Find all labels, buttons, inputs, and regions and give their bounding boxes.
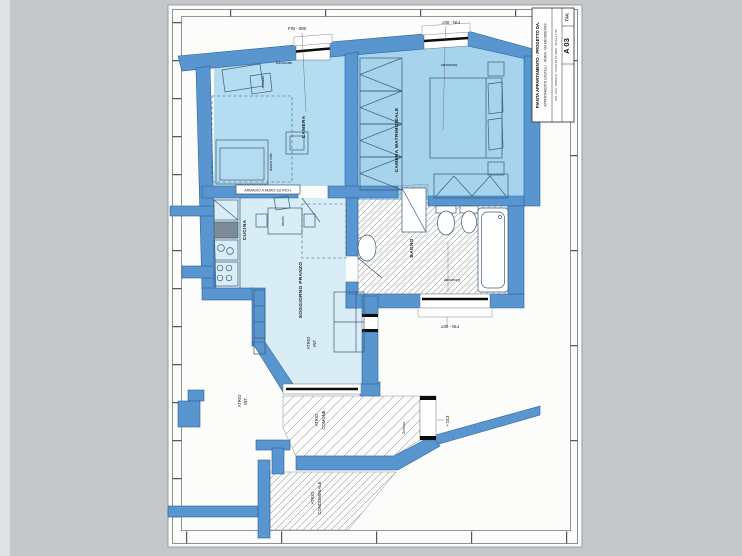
label-camera: CAMERA <box>301 115 307 138</box>
title-block-tav-number: A 03 <box>562 38 571 54</box>
bathtub <box>478 208 508 292</box>
label-tavolo: tavolo <box>281 216 285 225</box>
wall-pillar <box>188 390 204 401</box>
wall-pillar <box>178 401 200 427</box>
label-cucina: CUCINA <box>242 220 248 241</box>
washbasin <box>358 235 376 261</box>
label-atrio-int: ATRIO <box>306 336 311 349</box>
label-bagno: BAGNO <box>409 238 415 257</box>
title-block-line3: DIS. UA4 - MINUTE - DATA 28.07.2006 - SC… <box>554 29 558 101</box>
label-atrio-int-2: ATRIO <box>237 394 242 407</box>
label-davanzale-left: Davanzale <box>276 61 293 65</box>
svg-text:INT.: INT. <box>243 397 248 405</box>
label-fin-007-top: FIN - 007 <box>441 20 460 25</box>
title-block-line2: APPARTAMENTO CASTELLI - ROMA - VIA ANCON… <box>544 23 548 106</box>
floorplan-drawing: CAMERA CAMERA MATRIMONIALE CUCINA SOGGIO… <box>0 0 742 556</box>
title-block-tav-label: TAV. <box>565 13 570 22</box>
label-armadio-a-muro: ARMADIO A MURO SU RICH. <box>244 189 291 193</box>
label-atrio-condominiale: ATRIO <box>310 491 315 504</box>
label-armadio: armadio <box>261 76 265 89</box>
label-davanzale-right: Davanzale <box>441 63 458 67</box>
bidet <box>462 211 477 233</box>
window-fin-007-bagno <box>420 294 490 308</box>
label-soggiorno: SOGGIORNO PRANZO <box>298 262 304 319</box>
sink-unit <box>214 222 238 238</box>
floor-atrio-comune <box>283 396 420 456</box>
label-camera-matrimoniale: CAMERA MATRIMONIALE <box>394 107 400 172</box>
label-quota-entrata: + 013 <box>445 415 450 426</box>
title-block-line1: PIANTA APPARTAMENTO - PROGETTO DA. <box>535 22 540 108</box>
floorplan-scan: CAMERA CAMERA MATRIMONIALE CUCINA SOGGIO… <box>0 0 742 556</box>
room-camera <box>214 54 345 186</box>
label-zerbino: Zerbino <box>402 422 406 434</box>
entrance-door <box>420 396 436 440</box>
toilet <box>438 211 455 235</box>
label-divano-letto: divano letto <box>269 153 273 171</box>
label-atrio-comune: ATRIO <box>314 413 319 426</box>
svg-text:CONDOMINIALE: CONDOMINIALE <box>317 481 322 514</box>
title-block: TAV. A 03 PIANTA APPARTAMENTO - PROGETTO… <box>532 8 574 122</box>
label-fin-008: FIN - 008 <box>288 26 307 31</box>
label-davanzale-bagno: Davanzale <box>444 278 461 282</box>
label-fin-007-bagno: FIN - 007 <box>440 324 459 329</box>
svg-text:INT.: INT. <box>312 339 317 347</box>
svg-text:COMUNE: COMUNE <box>321 410 326 429</box>
